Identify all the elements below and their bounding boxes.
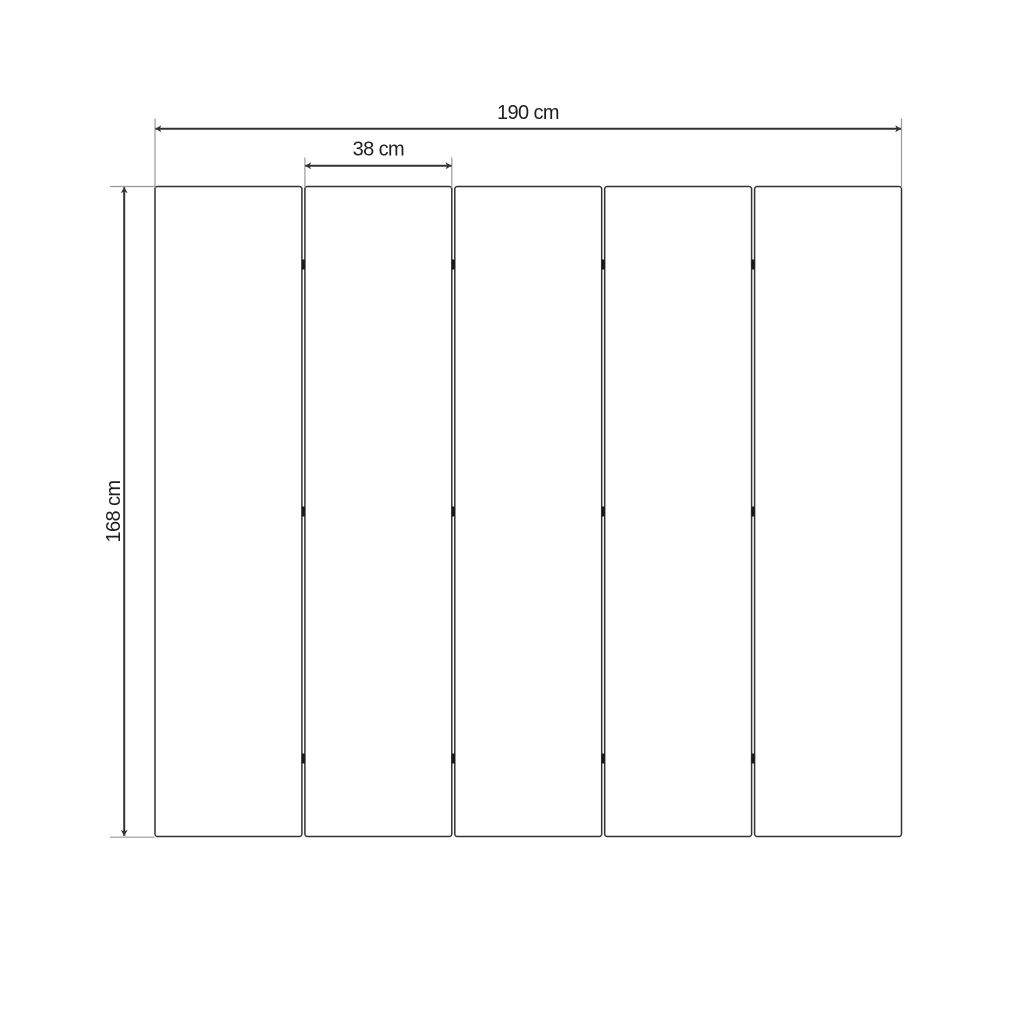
svg-text:38 cm: 38 cm <box>353 138 404 160</box>
svg-text:168 cm: 168 cm <box>103 481 125 543</box>
svg-text:190 cm: 190 cm <box>497 102 559 124</box>
